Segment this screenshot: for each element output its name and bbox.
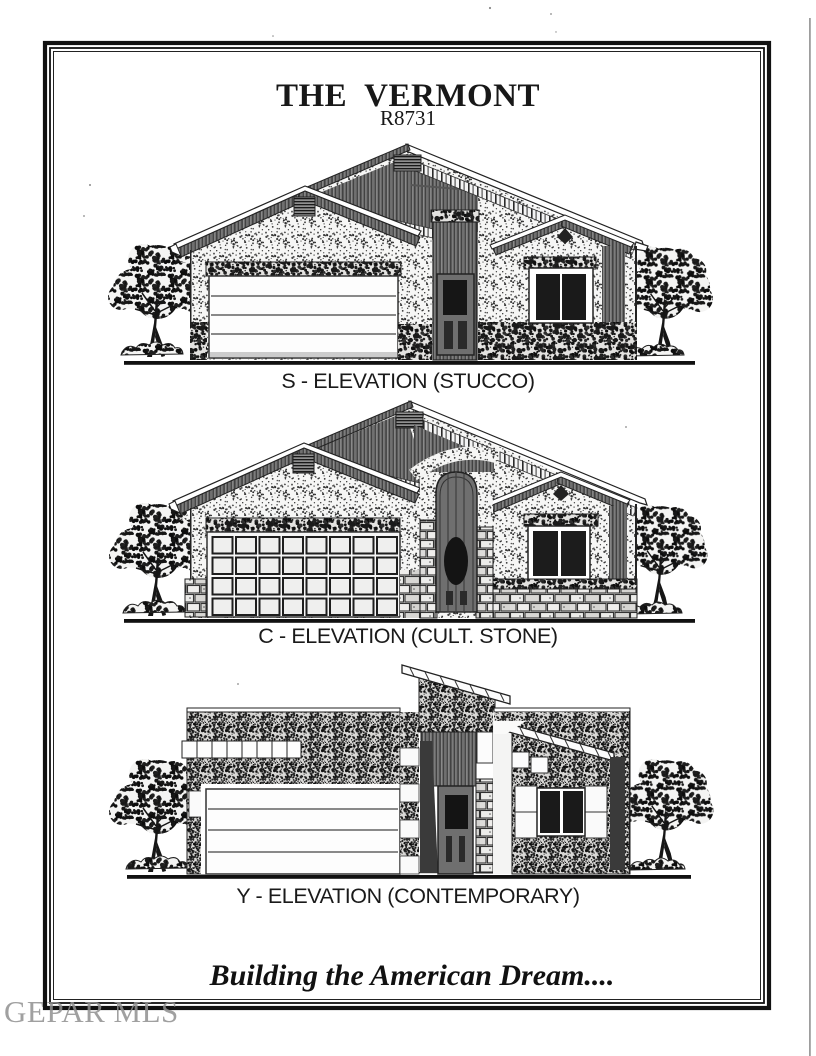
svg-text:Y - ELEVATION (CONTEMPORARY): Y - ELEVATION (CONTEMPORARY) bbox=[236, 884, 579, 908]
svg-text:R8731: R8731 bbox=[380, 106, 436, 130]
svg-text:S - ELEVATION (STUCCO): S - ELEVATION (STUCCO) bbox=[281, 369, 534, 393]
svg-text:GEPAR MLS: GEPAR MLS bbox=[4, 994, 179, 1029]
svg-text:Building the American Dream...: Building the American Dream.... bbox=[209, 959, 615, 992]
svg-text:C - ELEVATION (CULT. STONE): C - ELEVATION (CULT. STONE) bbox=[258, 624, 557, 648]
